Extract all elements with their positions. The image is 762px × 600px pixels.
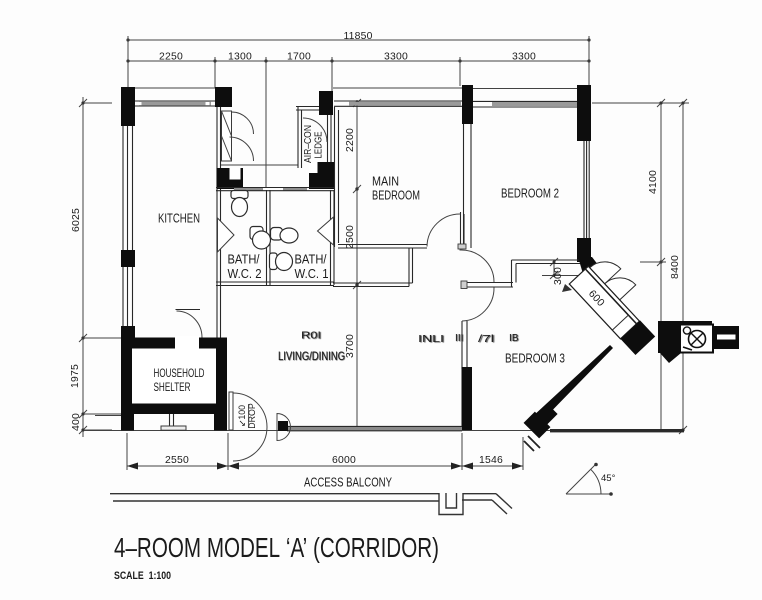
svg-text:R0I: R0I bbox=[301, 331, 321, 342]
svg-text:300: 300 bbox=[553, 267, 564, 285]
svg-text:1700: 1700 bbox=[287, 52, 311, 63]
svg-text:2550: 2550 bbox=[165, 455, 189, 466]
svg-text:BEDROOM 2: BEDROOM 2 bbox=[501, 186, 559, 201]
svg-text:400: 400 bbox=[71, 413, 82, 431]
svg-text:BATH/: BATH/ bbox=[295, 253, 327, 267]
svg-text:/7l: /7l bbox=[478, 334, 494, 345]
svg-text:SHELTER: SHELTER bbox=[154, 380, 191, 394]
svg-text:1300: 1300 bbox=[228, 52, 252, 63]
svg-text:BEDROOM: BEDROOM bbox=[372, 188, 420, 203]
svg-text:ACCESS BALCONY: ACCESS BALCONY bbox=[304, 475, 392, 490]
svg-text:III: III bbox=[455, 333, 463, 344]
svg-text:6000: 6000 bbox=[332, 455, 356, 466]
svg-text:3700: 3700 bbox=[345, 334, 356, 358]
svg-text:2250: 2250 bbox=[159, 52, 183, 63]
svg-text:LIVING/DINING: LIVING/DINING bbox=[278, 349, 345, 363]
svg-text:1546: 1546 bbox=[479, 455, 503, 466]
svg-text:4100: 4100 bbox=[648, 170, 659, 194]
svg-text:HOUSEHOLD: HOUSEHOLD bbox=[154, 366, 205, 380]
svg-text:W.C. 2: W.C. 2 bbox=[228, 267, 262, 281]
svg-text:LEDGE: LEDGE bbox=[313, 132, 325, 159]
svg-text:1975: 1975 bbox=[70, 364, 81, 388]
svg-text:45°: 45° bbox=[601, 473, 616, 484]
svg-text:8400: 8400 bbox=[670, 255, 681, 279]
svg-text:MAIN: MAIN bbox=[372, 174, 399, 189]
svg-text:11850: 11850 bbox=[343, 31, 372, 42]
svg-text:IB: IB bbox=[509, 333, 519, 344]
svg-text:3300: 3300 bbox=[512, 52, 536, 63]
svg-text:3300: 3300 bbox=[384, 52, 408, 63]
svg-text:BEDROOM 3: BEDROOM 3 bbox=[505, 351, 565, 366]
svg-text:↙100: ↙100 bbox=[237, 405, 247, 427]
svg-text:INLI: INLI bbox=[418, 334, 444, 345]
svg-text:2500: 2500 bbox=[345, 225, 356, 249]
svg-text:SCALE 1:100: SCALE 1:100 bbox=[114, 570, 171, 582]
svg-text:2200: 2200 bbox=[345, 128, 356, 152]
svg-text:6025: 6025 bbox=[71, 208, 82, 232]
svg-text:W.C. 1: W.C. 1 bbox=[295, 267, 329, 281]
svg-text:KITCHEN: KITCHEN bbox=[158, 211, 200, 226]
svg-text:4–ROOM MODEL ‘A’ (CORRIDOR): 4–ROOM MODEL ‘A’ (CORRIDOR) bbox=[114, 532, 439, 563]
svg-text:BATH/: BATH/ bbox=[228, 253, 260, 267]
